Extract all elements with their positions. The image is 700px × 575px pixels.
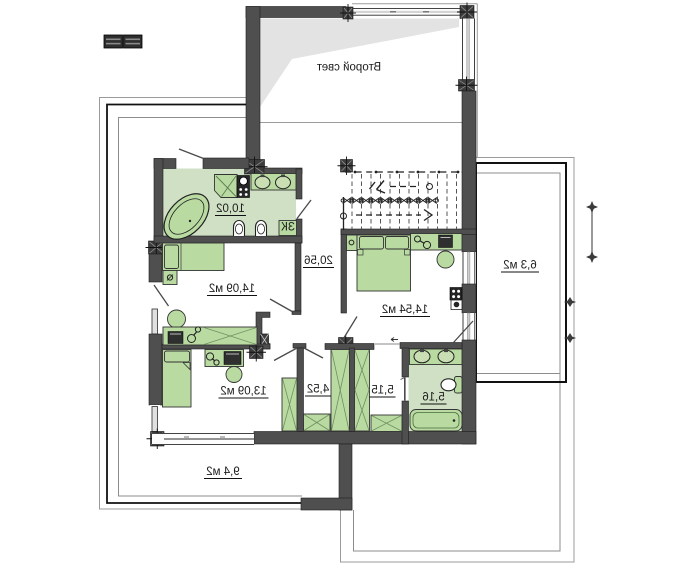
svg-text:6,3 м2: 6,3 м2	[503, 260, 536, 272]
svg-text:4,52: 4,52	[307, 384, 329, 396]
svg-text:14,09 м2: 14,09 м2	[209, 283, 255, 295]
svg-text:9,4 м2: 9,4 м2	[206, 466, 239, 478]
svg-text:10,02: 10,02	[216, 203, 245, 215]
svg-text:5,16: 5,16	[422, 392, 444, 404]
svg-text:5,15: 5,15	[371, 385, 393, 397]
svg-text:Второй свет: Второй свет	[316, 62, 381, 74]
svg-text:ЗК: ЗК	[281, 222, 295, 234]
svg-text:14,54 м2: 14,54 м2	[382, 304, 428, 316]
svg-text:20,56: 20,56	[304, 255, 333, 267]
svg-text:13,09 м2: 13,09 м2	[220, 386, 266, 398]
